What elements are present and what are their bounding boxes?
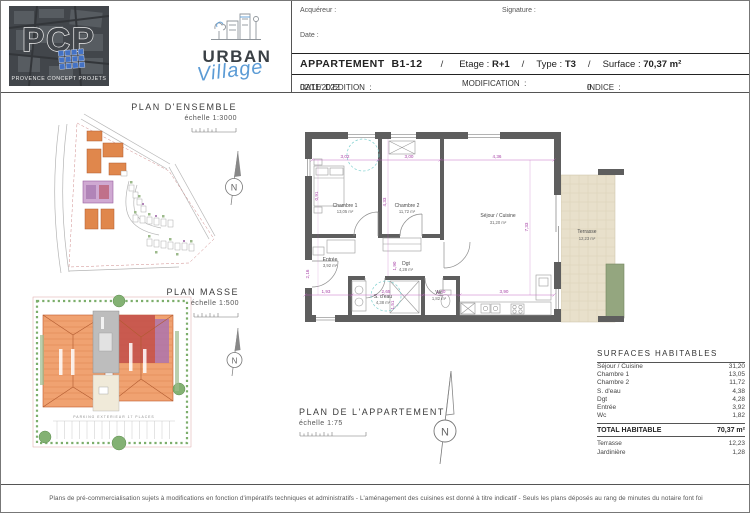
dim-label: 0,91 bbox=[314, 191, 319, 200]
dim-label: 2,16 bbox=[305, 269, 310, 278]
windows bbox=[305, 132, 561, 322]
buildings-orange bbox=[85, 131, 126, 229]
parking-label: PARKING EXTERIEUR 17 PLACES bbox=[73, 415, 154, 419]
footer-band: Plans de pré-commercialisation sujets à … bbox=[1, 484, 750, 512]
etage-value: R+1 bbox=[492, 59, 510, 70]
site-plan-masse-drawing: PARKING EXTERIEUR 17 PLACES bbox=[29, 291, 199, 463]
table-row: Terrasse12,23 bbox=[597, 440, 745, 448]
terrace bbox=[561, 175, 624, 322]
type-value: T3 bbox=[565, 59, 576, 70]
title-block: Acquéreur : Signature : Date : APPARTEME… bbox=[291, 1, 750, 92]
pcp-subtitle: PROVENCE CONCEPT PROJETS bbox=[12, 76, 107, 82]
row-label: Chambre 1 bbox=[597, 371, 629, 379]
table-row: Jardinière1,28 bbox=[597, 449, 745, 457]
row-label: Terrasse bbox=[597, 440, 622, 448]
type-label: Type : bbox=[536, 59, 565, 70]
row-value: 13,05 bbox=[729, 371, 745, 379]
dim-label: 4,36 bbox=[493, 154, 502, 159]
urban-village-logo: URBAN Village bbox=[179, 7, 291, 89]
row-label: Entrée bbox=[597, 404, 616, 412]
room-area: 1,82 m² bbox=[432, 296, 447, 301]
row-value: 1,28 bbox=[732, 449, 745, 457]
north-arrow-icon: N bbox=[219, 326, 251, 378]
building-highlighted bbox=[83, 181, 113, 203]
scale-bar bbox=[299, 430, 367, 439]
north-letter: N bbox=[441, 427, 449, 439]
room-area: 3,92 m² bbox=[323, 263, 338, 268]
surface-value: 70,37 m² bbox=[643, 59, 681, 70]
surface-field: Surface : 70,37 m² bbox=[603, 59, 682, 70]
table-row: Chambre 113,05 bbox=[597, 371, 745, 379]
edition-row: DATE D'EDITION : 02/11/2022 MODIFICATION… bbox=[292, 75, 750, 92]
surfaces-table: SURFACES HABITABLES Séjour / Cuisine31,2… bbox=[597, 349, 745, 457]
table-row: Dgt4,28 bbox=[597, 396, 745, 404]
row-value: 12,23 bbox=[729, 440, 745, 448]
acquereur-label: Acquéreur : bbox=[300, 7, 336, 14]
plan-appartement-scale: échelle 1:75 bbox=[299, 420, 343, 427]
urban-sketch-icon bbox=[211, 14, 261, 40]
etage-field: Etage : R+1 bbox=[459, 59, 509, 70]
row-label: S. d'eau bbox=[597, 388, 621, 396]
plan-sheet: PCP PROVENCE CONCEPT PROJETS URBAN Villa… bbox=[0, 0, 750, 513]
row-label: Dgt bbox=[597, 396, 607, 404]
row-value: 11,72 bbox=[729, 379, 745, 387]
hedge-strip bbox=[40, 335, 44, 385]
building-right-highlighted bbox=[113, 315, 173, 401]
row-label: Chambre 2 bbox=[597, 379, 629, 387]
separator: / bbox=[522, 59, 525, 70]
apartment-id: APPARTEMENT B1-12 bbox=[300, 58, 423, 70]
scale-bar bbox=[193, 311, 239, 320]
hedge-strip bbox=[175, 331, 179, 391]
north-arrow-icon: N bbox=[421, 369, 469, 467]
dim-label: 7,33 bbox=[524, 222, 529, 231]
room-area: 4,38 m² bbox=[376, 300, 391, 305]
table-row: Wc1,82 bbox=[597, 412, 745, 420]
dim-label: 3,00 bbox=[405, 154, 414, 159]
site-plan-ensemble-drawing bbox=[29, 111, 234, 281]
table-row: Entrée3,92 bbox=[597, 404, 745, 412]
building-core bbox=[93, 311, 119, 411]
parking-area: PARKING EXTERIEUR 17 PLACES bbox=[53, 415, 175, 439]
table-row: Chambre 211,72 bbox=[597, 379, 745, 387]
etage-label: Etage : bbox=[459, 59, 492, 70]
north-arrow-icon: N bbox=[217, 149, 253, 207]
separator: / bbox=[588, 59, 591, 70]
apartment-title-row: APPARTEMENT B1-12 / Etage : R+1 / Type :… bbox=[292, 53, 750, 75]
modification-label: MODIFICATION : bbox=[462, 79, 526, 88]
row-value: 31,20 bbox=[729, 363, 745, 371]
signature-label: Signature : bbox=[502, 7, 536, 14]
north-letter: N bbox=[232, 357, 238, 366]
room-area: 31,20 m² bbox=[490, 220, 507, 225]
dim-label: 3,90 bbox=[500, 289, 509, 294]
apartment-floorplan: 3,02 3,00 4,36 1,93 2,65 1,40 3,90 0,91 … bbox=[293, 114, 675, 356]
row-value: 4,38 bbox=[732, 388, 745, 396]
total-label: TOTAL HABITABLE bbox=[597, 427, 661, 434]
row-value: 4,28 bbox=[732, 396, 745, 404]
room-label-terrasse: Terrasse bbox=[577, 229, 596, 235]
row-value: 1,82 bbox=[732, 412, 745, 420]
room-label-sejour: Séjour / Cuisine bbox=[480, 213, 516, 219]
dim-label: 1,90 bbox=[392, 261, 397, 270]
header-band: PCP PROVENCE CONCEPT PROJETS URBAN Villa… bbox=[1, 1, 750, 93]
surface-label: Surface : bbox=[603, 59, 644, 70]
dim-label: 3,02 bbox=[341, 154, 350, 159]
dim-label: 4,33 bbox=[382, 197, 387, 206]
type-field: Type : T3 bbox=[536, 59, 576, 70]
row-label: Jardinière bbox=[597, 449, 626, 457]
room-area: 12,23 m² bbox=[579, 236, 596, 241]
separator: / bbox=[441, 59, 444, 70]
room-area: 4,28 m² bbox=[399, 267, 414, 272]
dimensions: 3,02 3,00 4,36 1,93 2,65 1,40 3,90 0,91 … bbox=[304, 139, 556, 309]
table-row: Séjour / Cuisine31,20 bbox=[597, 363, 745, 371]
row-label: Wc bbox=[597, 412, 606, 420]
dim-label: 1,93 bbox=[322, 289, 331, 294]
surfaces-table-title: SURFACES HABITABLES bbox=[597, 349, 745, 363]
room-area: 11,72 m² bbox=[399, 209, 416, 214]
table-total-row: TOTAL HABITABLE70,37 m² bbox=[597, 423, 745, 437]
planter bbox=[606, 264, 624, 318]
table-row: S. d'eau4,38 bbox=[597, 388, 745, 396]
pcp-logo: PCP PROVENCE CONCEPT PROJETS bbox=[9, 6, 109, 86]
date-label: Date : bbox=[300, 32, 319, 39]
room-area: 13,05 m² bbox=[337, 209, 354, 214]
dim-label: 1,51 bbox=[390, 300, 395, 309]
total-value: 70,37 m² bbox=[717, 427, 745, 434]
north-letter: N bbox=[231, 183, 238, 193]
row-value: 3,92 bbox=[732, 404, 745, 412]
disclaimer-text: Plans de pré-commercialisation sujets à … bbox=[49, 495, 703, 502]
row-label: Séjour / Cuisine bbox=[597, 363, 643, 371]
